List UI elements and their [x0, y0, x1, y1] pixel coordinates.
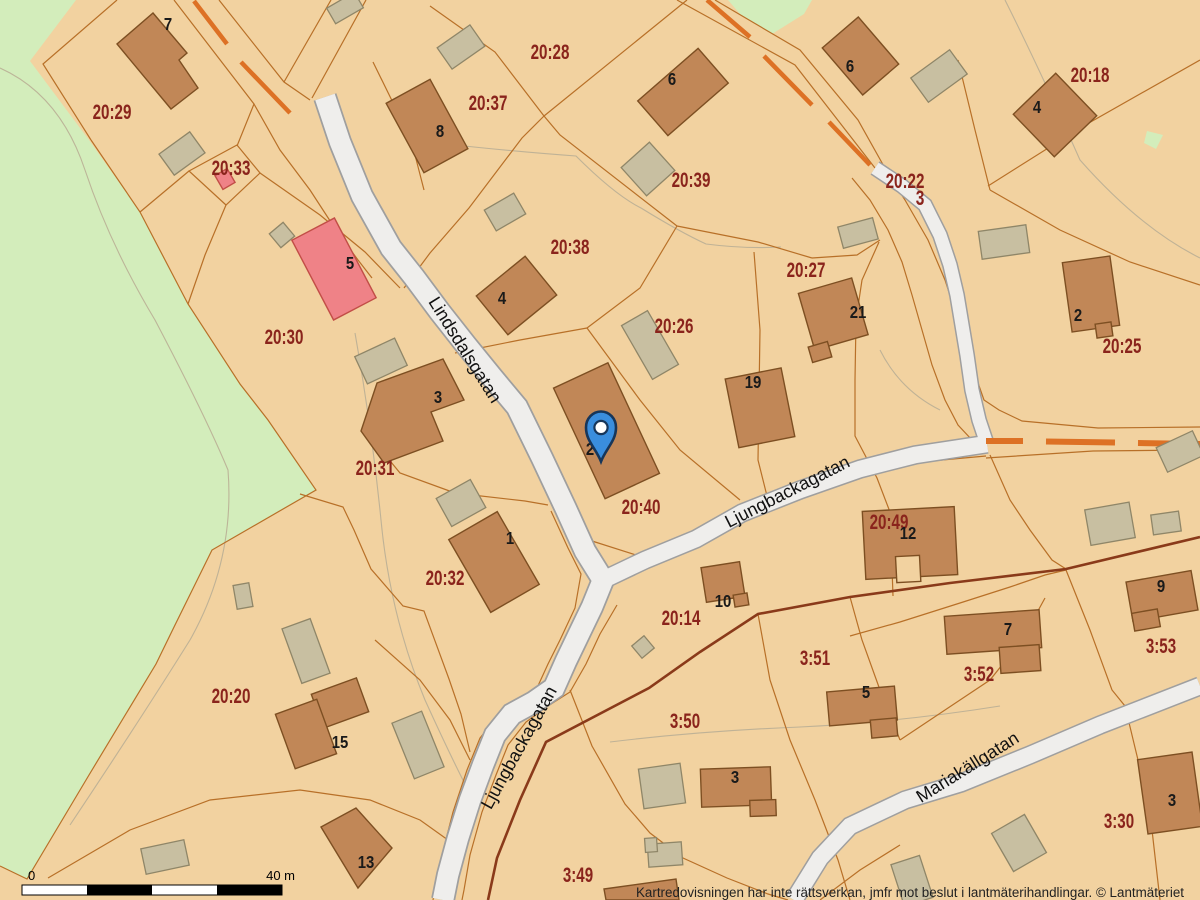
- svg-text:6: 6: [668, 69, 677, 89]
- svg-text:4: 4: [498, 288, 507, 308]
- svg-text:19: 19: [745, 372, 762, 392]
- svg-text:20:31: 20:31: [356, 457, 395, 480]
- svg-text:1: 1: [506, 528, 515, 548]
- svg-text:3: 3: [1168, 790, 1177, 810]
- svg-text:3:51: 3:51: [800, 647, 830, 670]
- svg-text:7: 7: [164, 14, 172, 34]
- svg-text:4: 4: [1033, 97, 1042, 117]
- svg-text:10: 10: [715, 591, 732, 611]
- svg-text:3: 3: [916, 187, 925, 210]
- svg-text:20:20: 20:20: [212, 685, 251, 708]
- svg-text:20:18: 20:18: [1071, 64, 1110, 87]
- svg-text:2: 2: [1074, 305, 1083, 325]
- svg-text:0: 0: [28, 868, 35, 883]
- svg-text:20:33: 20:33: [212, 157, 251, 180]
- svg-text:20:32: 20:32: [426, 567, 465, 590]
- svg-text:20:39: 20:39: [672, 169, 711, 192]
- svg-text:20:37: 20:37: [469, 92, 508, 115]
- svg-text:20:30: 20:30: [265, 326, 304, 349]
- svg-text:9: 9: [1157, 576, 1166, 596]
- svg-text:12: 12: [900, 523, 917, 543]
- svg-text:20:14: 20:14: [662, 607, 701, 630]
- svg-text:20:40: 20:40: [622, 496, 661, 519]
- svg-text:3:30: 3:30: [1104, 810, 1134, 833]
- svg-text:3: 3: [731, 767, 740, 787]
- svg-text:3:49: 3:49: [563, 864, 593, 887]
- svg-text:20:38: 20:38: [551, 236, 590, 259]
- svg-text:15: 15: [332, 732, 349, 752]
- svg-text:40 m: 40 m: [266, 868, 295, 883]
- svg-text:21: 21: [850, 302, 867, 322]
- svg-text:20:27: 20:27: [787, 259, 826, 282]
- svg-text:5: 5: [346, 253, 355, 273]
- svg-text:7: 7: [1004, 619, 1012, 639]
- svg-text:3:50: 3:50: [670, 710, 700, 733]
- svg-text:5: 5: [862, 682, 871, 702]
- svg-text:3:53: 3:53: [1146, 635, 1176, 658]
- svg-text:20:25: 20:25: [1103, 335, 1142, 358]
- svg-text:Kartredovisningen har inte rät: Kartredovisningen har inte rättsverkan, …: [636, 885, 1184, 900]
- svg-text:8: 8: [436, 121, 445, 141]
- svg-text:20:26: 20:26: [655, 315, 694, 338]
- svg-text:13: 13: [358, 852, 375, 872]
- svg-text:20:29: 20:29: [93, 101, 132, 124]
- svg-text:3: 3: [434, 387, 443, 407]
- svg-text:20:28: 20:28: [531, 41, 570, 64]
- svg-text:6: 6: [846, 56, 855, 76]
- svg-text:3:52: 3:52: [964, 663, 994, 686]
